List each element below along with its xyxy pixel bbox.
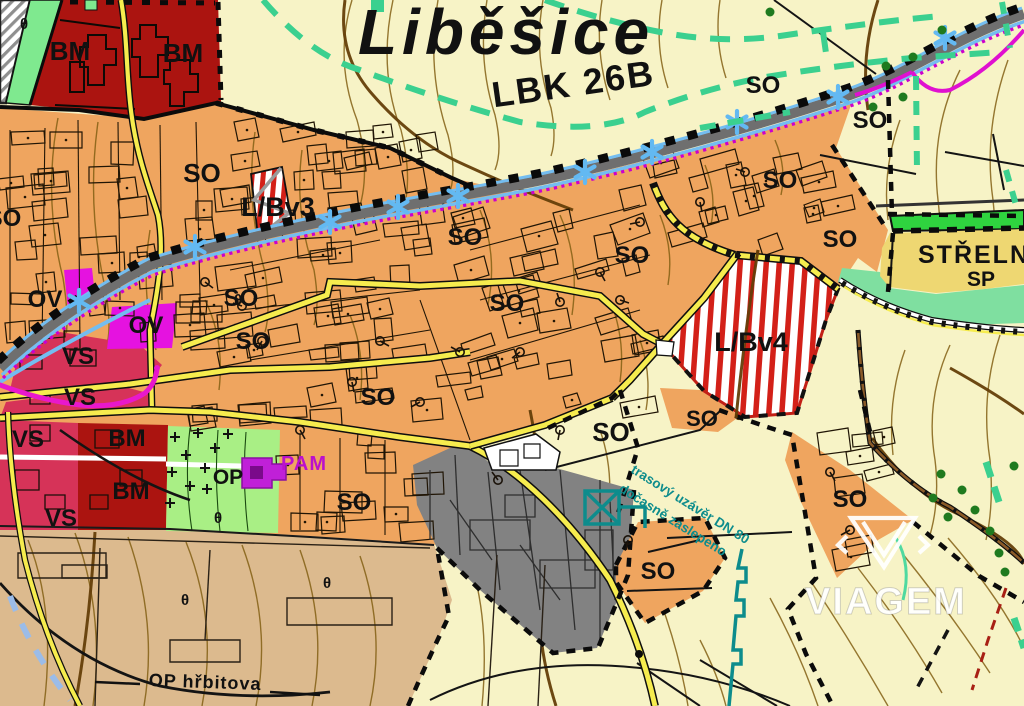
- svg-text:SO: SO: [641, 558, 676, 585]
- svg-text:L/Bv3: L/Bv3: [241, 192, 315, 222]
- svg-text:SO: SO: [763, 167, 798, 194]
- svg-text:VIAGEM: VIAGEM: [805, 581, 967, 623]
- svg-text:SO: SO: [183, 158, 221, 188]
- svg-text:PAM: PAM: [281, 453, 327, 475]
- svg-text:SO: SO: [686, 406, 718, 431]
- svg-text:VS: VS: [45, 505, 77, 532]
- svg-text:SO: SO: [592, 417, 630, 447]
- svg-text:SO: SO: [0, 205, 21, 232]
- svg-text:SO: SO: [361, 384, 396, 411]
- svg-text:SO: SO: [448, 224, 483, 251]
- svg-text:SO: SO: [833, 486, 868, 513]
- svg-text:SO: SO: [615, 242, 650, 269]
- svg-text:SO: SO: [823, 226, 858, 253]
- svg-text:BM: BM: [108, 425, 145, 452]
- svg-text:SO: SO: [490, 290, 525, 317]
- svg-text:SO: SO: [337, 489, 372, 516]
- svg-text:θ: θ: [20, 16, 28, 33]
- svg-text:OP hřbitova: OP hřbitova: [149, 670, 262, 694]
- svg-text:VS: VS: [64, 384, 96, 411]
- svg-text:SO: SO: [853, 107, 888, 134]
- svg-text:BM: BM: [163, 38, 203, 68]
- svg-text:SO: SO: [236, 328, 271, 355]
- svg-text:VS: VS: [12, 426, 44, 453]
- svg-text:SP: SP: [967, 268, 995, 291]
- svg-text:OV: OV: [28, 286, 63, 313]
- svg-text:STŘELNIC: STŘELNIC: [918, 239, 1024, 269]
- svg-text:BM: BM: [50, 36, 90, 66]
- svg-text:OV: OV: [129, 312, 164, 339]
- svg-text:L/Bv4: L/Bv4: [714, 327, 788, 357]
- svg-text:BM: BM: [112, 478, 149, 505]
- svg-text:OP: OP: [213, 466, 243, 489]
- svg-text:θ: θ: [323, 575, 331, 592]
- svg-text:SO: SO: [224, 285, 259, 312]
- svg-text:SO: SO: [746, 72, 781, 99]
- svg-text:VS: VS: [62, 343, 94, 370]
- svg-text:θ: θ: [181, 592, 189, 609]
- svg-text:θ: θ: [214, 510, 222, 527]
